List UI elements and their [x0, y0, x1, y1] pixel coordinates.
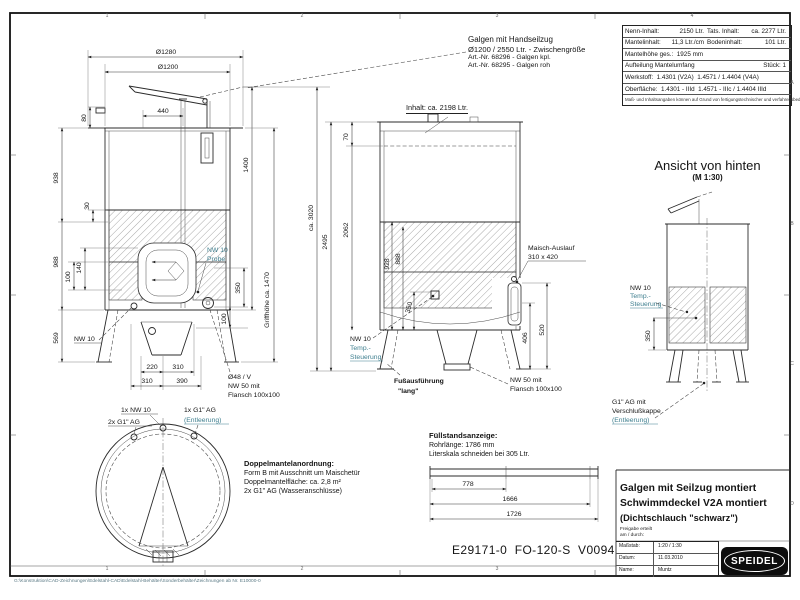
title-line: (Dichtschlauch "schwarz") [620, 512, 767, 525]
spec-label: Mantelinhalt: [625, 39, 661, 46]
galgen-leader [246, 52, 466, 88]
dim-label: ca. 3020 [308, 205, 315, 231]
dim-label: 440 [157, 108, 169, 115]
fuellstand-line: Literskala schneiden bei 305 Ltr. [429, 450, 529, 459]
meta-value: 11.03.2010 [654, 554, 718, 565]
dim-label: 220 [146, 364, 158, 371]
dim-label: 1400 [243, 157, 250, 172]
callout-probe: Probe [207, 256, 225, 263]
zone-letter-right: C [786, 361, 798, 367]
fuellstand-annotation: Füllstandsanzeige: Rohrlänge: 1786 mm Li… [429, 431, 529, 459]
doppelmantel-line: 2x G1" AG (Wasseranschlüsse) [244, 487, 360, 496]
callout-o48: Ø48 / V [228, 374, 252, 381]
title-line: Schwimmdeckel V2A montiert [620, 497, 767, 512]
meta-value: Muntz [654, 566, 718, 577]
dim-label: 100 [221, 313, 228, 325]
spec-label: Tats. Inhalt: [707, 28, 739, 35]
dim-label: Ø1200 [158, 64, 179, 71]
callout-g1-verschluss: G1" AG mit [612, 399, 646, 406]
galgen-annotation: Galgen mit Handseilzug Ø1200 / 2550 Ltr.… [468, 35, 585, 71]
meta-value: 1:20 / 1:30 [654, 542, 718, 553]
spec-row: Oberfläche: 1.4301 - IIId 1.4571 - IIIc … [623, 84, 791, 96]
callout-2x-g1: 2x G1" AG [108, 419, 140, 426]
dim-label: 406 [522, 332, 529, 344]
level-tube-drawing: 778 1666 1726 [430, 466, 598, 522]
rear-view-drawing [665, 192, 750, 393]
dim-label: Ø1280 [156, 49, 177, 56]
dim-label: 928 [384, 258, 391, 270]
spec-table: Nenn-Inhalt:2150 Ltr. Tats. Inhalt:ca. 2… [622, 25, 792, 106]
galgen-line: Art.-Nr. 68295 - Galgen roh [468, 62, 585, 70]
dim-label: 569 [53, 332, 60, 344]
callout-temp: Temp.- [630, 293, 651, 300]
dim-label: 2495 [322, 234, 329, 249]
spec-label: Nenn-Inhalt: [625, 28, 659, 35]
rear-view-title-text: Ansicht von hinten [645, 158, 770, 173]
dim-label: 390 [176, 378, 188, 385]
callout-entleerung: (Entleerung) [612, 417, 649, 424]
galgen-line: Galgen mit Handseilzug [468, 35, 585, 45]
meta-row: Datum: 11.03.2010 [616, 554, 718, 566]
fuellstand-line: Rohrlänge: 1786 mm [429, 441, 529, 450]
spec-label: Werkstoff: 1.4301 (V2A) 1.4571 / 1.4404 … [625, 74, 759, 81]
drawing-number: E29171-0 FO-120-S V0094 [452, 543, 615, 557]
meta-row: Maßstab: 1:20 / 1:30 [616, 542, 718, 554]
dim-label: 1726 [506, 511, 521, 518]
title-line: Galgen mit Seilzug montiert [620, 482, 767, 497]
dim-label: Griffhöhe ca. 1470 [264, 272, 271, 328]
dim-label: 70 [343, 133, 350, 141]
spec-value: 11,3 Ltr./cm [672, 39, 704, 46]
zone-number-top: 4 [686, 13, 698, 19]
zone-letter-right: B [786, 221, 798, 227]
dim-label: 888 [395, 253, 402, 265]
callout-temp: NW 10 [350, 336, 371, 343]
callout-entleerung: (Entleerung) [184, 417, 221, 424]
drawing-sheet: Ø1280 Ø1200 440 80 938 988 569 30 140 10… [0, 0, 800, 600]
doppelmantel-title: Doppelmantelanordnung: [244, 459, 360, 469]
callout-nw50: Flansch 100x100 [510, 386, 562, 393]
doppelmantel-line: Form B mit Ausschnitt um Maischetür [244, 469, 360, 478]
file-path-footer: G:\Konstruktion\CAD-Zeichnungen\Edelstah… [14, 579, 261, 584]
spec-note-row: Maß- und Inhaltsangaben können auf Grund… [623, 95, 791, 105]
zone-number-top: 3 [491, 13, 503, 19]
meta-label: Maßstab: [616, 542, 654, 553]
callout-nw50: Flansch 100x100 [228, 392, 280, 399]
zone-letter-right: D [786, 501, 798, 507]
dim-label: 310 [141, 378, 153, 385]
fuellstand-title: Füllstandsanzeige: [429, 431, 529, 441]
title-block-text: Galgen mit Seilzug montiert Schwimmdecke… [620, 482, 767, 525]
callout-maisch-auslauf: Maisch-Auslauf [528, 245, 575, 252]
dim-label: 2062 [343, 222, 350, 237]
rear-view-title: Ansicht von hinten (M 1:30) [645, 158, 770, 182]
spec-row: Nenn-Inhalt:2150 Ltr. Tats. Inhalt:ca. 2… [623, 26, 791, 38]
dim-label: 140 [76, 262, 83, 274]
dim-label: 520 [539, 324, 546, 336]
rear-view-scale: (M 1:30) [645, 173, 770, 182]
dim-label: 350 [405, 301, 415, 314]
meta-row: Name: Muntz [616, 566, 718, 577]
spec-note: Maß- und Inhaltsangaben können auf Grund… [625, 97, 800, 103]
spec-row: Werkstoff: 1.4301 (V2A) 1.4571 / 1.4404 … [623, 72, 791, 84]
dim-label: 778 [462, 481, 474, 488]
callout-temp: Steuerung [630, 301, 662, 308]
side-view-drawing [377, 114, 531, 370]
dim-label: 310 [172, 364, 184, 371]
zone-number-bottom: 1 [101, 566, 113, 572]
callout-temp: Temp.- [350, 345, 371, 352]
top-view-drawing [96, 418, 230, 566]
top-view-labels: 1x NW 10 2x G1" AG 1x G1" AG (Entleerung… [108, 407, 229, 434]
freigabe-note: Freigabe erteilt am / durch: [620, 527, 652, 539]
spec-value: ca. 2277 Ltr. [751, 28, 786, 35]
meta-label: Datum: [616, 554, 654, 565]
zone-number-bottom: 3 [491, 566, 503, 572]
callout-1x-nw10: 1x NW 10 [121, 407, 151, 414]
callout-probe: NW 10 [207, 247, 228, 254]
dim-label: 350 [645, 330, 652, 342]
spec-value: 101 Ltr. [765, 39, 786, 46]
dim-label: 938 [53, 172, 60, 184]
callout-nw50: NW 50 mit [228, 383, 260, 390]
inhalt-label: Inhalt: ca. 2198 Ltr. [406, 103, 468, 114]
zone-number-top: 2 [296, 13, 308, 19]
dim-label: 80 [81, 114, 88, 122]
zone-letter-right: A [786, 80, 798, 86]
dim-label: 350 [235, 282, 242, 294]
callout-temp: NW 10 [630, 285, 651, 292]
callout-nw50: NW 50 mit [510, 377, 542, 384]
spec-row: Mantelhöhe ges.: 1925 mm [623, 49, 791, 61]
dim-label: 988 [53, 256, 60, 268]
callout-g1-verschluss: Verschlußkappe [612, 408, 661, 415]
zone-number-bottom: 2 [296, 566, 308, 572]
dim-label: 30 [84, 202, 91, 210]
title-block-meta-table: Maßstab: 1:20 / 1:30 Datum: 11.03.2010 N… [616, 541, 719, 577]
speidel-logo: SPEIDEL [721, 547, 788, 575]
spec-value: 2150 Ltr. [679, 28, 704, 35]
dim-label: 1666 [502, 496, 517, 503]
spec-label: Bodeninhalt: [707, 39, 742, 46]
doppelmantel-annotation: Doppelmantelanordnung: Form B mit Aussch… [244, 459, 360, 496]
callout-1x-g1: 1x G1" AG [184, 407, 216, 414]
callout-fuss: Fußausführung [394, 378, 444, 385]
doppelmantel-line: Doppelmantelfläche: ca. 2,8 m² [244, 478, 360, 487]
zone-number-top: 1 [101, 13, 113, 19]
dim-label: 100 [65, 271, 72, 283]
meta-label: Name: [616, 566, 654, 577]
spec-value: Stück: 1 [763, 62, 786, 69]
front-view-drawing [88, 86, 243, 362]
galgen-line: Ø1200 / 2550 Ltr. - Zwischengröße [468, 45, 585, 54]
spec-row: Mantelinhalt:11,3 Ltr./cm Bodeninhalt:10… [623, 38, 791, 50]
spec-label: Mantelhöhe ges.: 1925 mm [625, 51, 703, 58]
speidel-logo-text: SPEIDEL [731, 556, 778, 567]
callout-temp: Steuerung [350, 354, 382, 361]
callout-fuss: "lang" [398, 388, 418, 395]
spec-label: Oberfläche: 1.4301 - IIId 1.4571 - IIIc … [625, 86, 766, 93]
galgen-line: Art.-Nr. 68296 - Galgen kpl. [468, 54, 585, 62]
callout-maisch-auslauf: 310 x 420 [528, 254, 558, 261]
callout-nw10: NW 10 [74, 336, 95, 343]
freigabe-line: am / durch: [620, 533, 652, 539]
spec-label: Aufteilung Mantelumfang [625, 62, 695, 69]
spec-row: Aufteilung MantelumfangStück: 1 [623, 61, 791, 73]
